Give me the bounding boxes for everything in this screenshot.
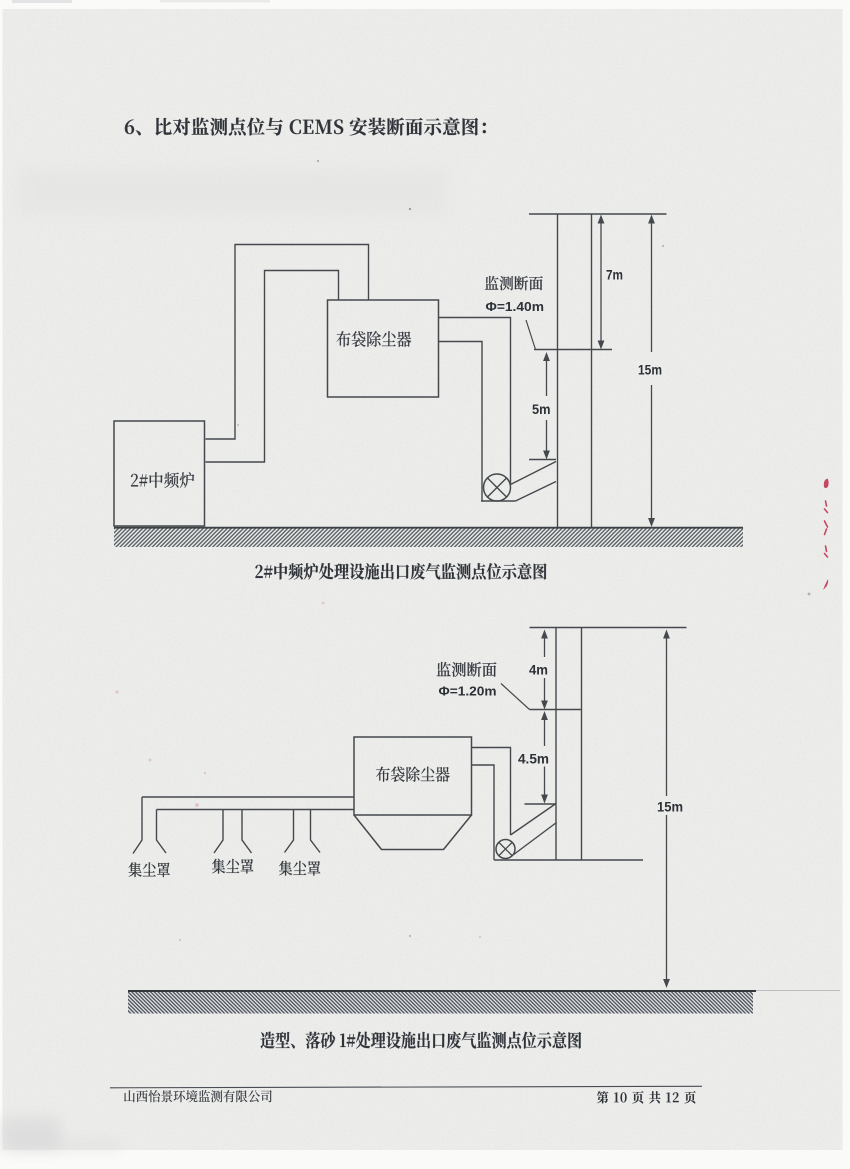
svg-text:Φ=1.20m: Φ=1.20m — [439, 684, 497, 699]
svg-text:7m: 7m — [606, 267, 623, 283]
svg-text:15m: 15m — [657, 799, 683, 815]
svg-text:Φ=1.40m: Φ=1.40m — [486, 299, 545, 314]
svg-text:5m: 5m — [532, 401, 551, 417]
svg-text:4m: 4m — [529, 662, 548, 678]
svg-text:4.5m: 4.5m — [518, 751, 549, 767]
svg-text:15m: 15m — [638, 362, 662, 378]
